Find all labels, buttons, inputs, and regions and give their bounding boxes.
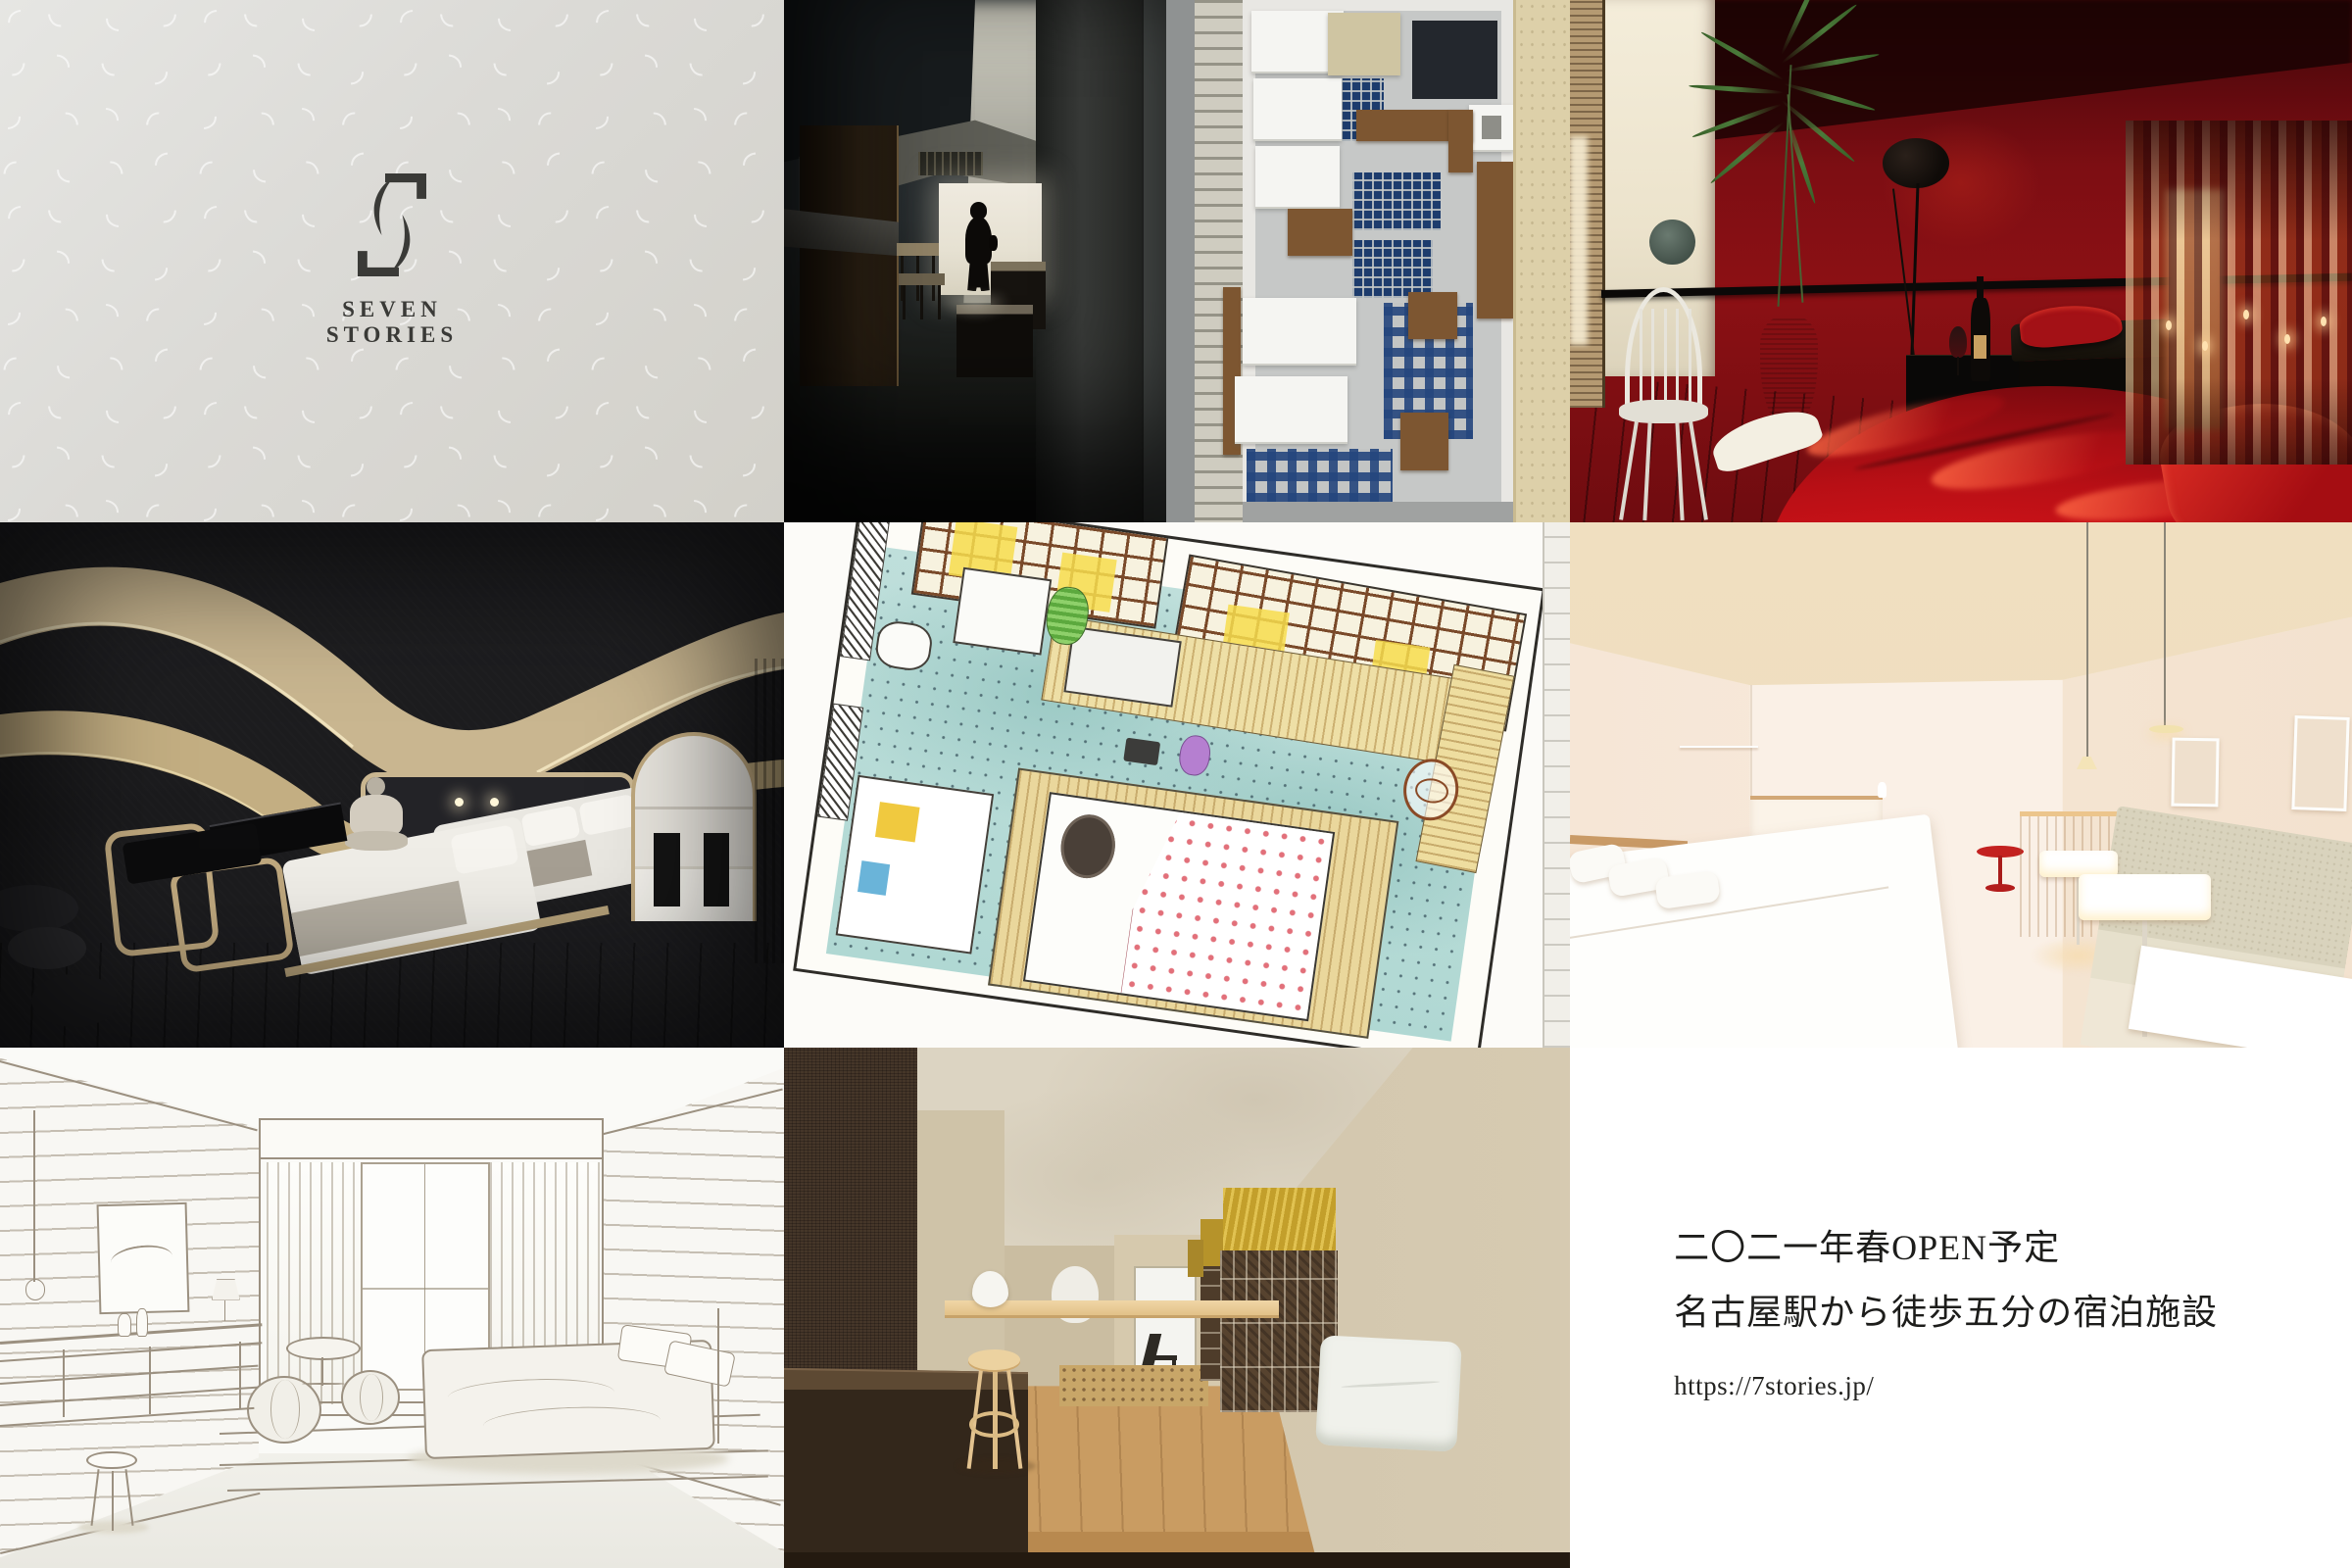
model-bottom-wall bbox=[1243, 502, 1513, 522]
wall-glow bbox=[1851, 94, 2070, 271]
tile-watercolor-floorplan bbox=[784, 522, 1570, 1048]
black-floor-lamp-head bbox=[1883, 138, 1949, 188]
side-table-top bbox=[286, 1337, 361, 1360]
tile-dark-ribbon-bedroom-render bbox=[0, 522, 784, 1048]
model-bed bbox=[1235, 376, 1347, 444]
counter-support bbox=[239, 1342, 241, 1409]
brand-wordmark-line1: SEVEN bbox=[245, 297, 539, 322]
white-windsor-chair bbox=[1613, 287, 1715, 522]
small-black-box bbox=[1123, 738, 1160, 766]
white-foam-block bbox=[1255, 146, 1341, 209]
pendant-wire bbox=[2164, 522, 2166, 727]
pendant-wire bbox=[2086, 522, 2088, 759]
stool-leg bbox=[112, 1471, 114, 1531]
blue-tile-patch bbox=[1352, 240, 1433, 298]
white-bed-corner bbox=[1316, 1336, 1463, 1452]
round-pouf bbox=[341, 1370, 400, 1425]
concrete-edge bbox=[1513, 0, 1570, 522]
seven-stories-s-logo-icon bbox=[358, 173, 426, 276]
sheer-curtain bbox=[2126, 121, 2352, 465]
counter-vase bbox=[136, 1308, 148, 1337]
tile-bedroom-line-sketch bbox=[0, 1048, 784, 1568]
tile-red-bedroom-render bbox=[1570, 0, 2352, 522]
model-bed bbox=[1243, 298, 1355, 366]
collage-stage: ◜◞◝◟◜◞◝◟◜◞◝◟◜◞◝◟◝◟◜◞◝◟◜◞◝◟◜◞◝◟◜◞◜◞◝◟◜◞◝◟… bbox=[0, 0, 2352, 1568]
window-valance bbox=[259, 1118, 604, 1159]
wall-art-frame bbox=[2291, 715, 2349, 811]
tile-brand-logo: ◜◞◝◟◜◞◝◟◜◞◝◟◜◞◝◟◝◟◜◞◝◟◜◞◝◟◜◞◝◟◜◞◜◞◝◟◜◞◝◟… bbox=[0, 0, 784, 522]
tile-architectural-model-photo bbox=[1166, 0, 1570, 522]
wall-art-frame bbox=[2172, 737, 2220, 806]
pendant-cord bbox=[33, 1110, 35, 1282]
wood-block bbox=[1288, 209, 1352, 256]
round-mirror bbox=[1649, 220, 1694, 265]
model-left-strip bbox=[1166, 0, 1195, 522]
tile-pink-room-render bbox=[1570, 522, 2352, 1048]
wood-block bbox=[1400, 413, 1448, 470]
gold-leaf-top bbox=[1223, 1188, 1336, 1250]
wood-block bbox=[1408, 292, 1456, 339]
bed-plan bbox=[1023, 792, 1335, 1021]
vignette bbox=[0, 522, 784, 1048]
white-vase bbox=[1878, 782, 1887, 798]
wood-bench-model bbox=[1477, 162, 1513, 318]
potted-palm-plant bbox=[1703, 11, 1876, 428]
wall-sliver bbox=[917, 1110, 1004, 1381]
wine-bottle bbox=[1971, 298, 1989, 381]
wood-bench-model bbox=[1448, 110, 1473, 172]
wood-bar-stool bbox=[964, 1349, 1023, 1469]
tile-announcement-text: 二〇二一年春OPEN予定 名古屋駅から徒歩五分の宿泊施設 https://7st… bbox=[1570, 1048, 2352, 1568]
blue-tile-grid bbox=[1247, 449, 1392, 501]
pendant-loop bbox=[25, 1279, 46, 1299]
gold-leaf-step bbox=[1188, 1240, 1203, 1276]
tile-entrance-silhouette-photo bbox=[784, 0, 1166, 522]
announcement-url: https://7stories.jp/ bbox=[1674, 1373, 2218, 1399]
counter-vase bbox=[118, 1313, 131, 1337]
round-pouf bbox=[247, 1376, 321, 1444]
photo-vignette bbox=[784, 0, 1166, 522]
dotted-rug bbox=[1059, 1365, 1208, 1406]
floorplan-drawing bbox=[793, 522, 1545, 1048]
tile-beige-collage-render bbox=[784, 1048, 1570, 1568]
window-light-slit bbox=[1570, 136, 1588, 345]
clothes-rail bbox=[1680, 746, 1758, 748]
announcement-line1: 二〇二一年春OPEN予定 bbox=[1674, 1230, 2218, 1265]
dark-base-band bbox=[784, 1552, 1570, 1568]
table-lamp-stem bbox=[224, 1300, 226, 1321]
headboard-line bbox=[717, 1308, 719, 1444]
beige-block bbox=[1328, 13, 1400, 75]
framed-art-sketch bbox=[97, 1202, 190, 1314]
white-box-with-hole bbox=[1469, 105, 1513, 152]
red-pedestal-table bbox=[1977, 846, 2024, 893]
wine-glass bbox=[1949, 326, 1967, 358]
curtain-left bbox=[267, 1162, 361, 1404]
white-foam-block bbox=[1253, 78, 1343, 141]
announcement-block: 二〇二一年春OPEN予定 名古屋駅から徒歩五分の宿泊施設 https://7st… bbox=[1674, 1230, 2218, 1399]
announcement-line2: 名古屋駅から徒歩五分の宿泊施設 bbox=[1674, 1295, 2218, 1330]
black-block bbox=[1412, 21, 1497, 99]
counter-support bbox=[149, 1347, 151, 1414]
stool-seat bbox=[86, 1451, 137, 1470]
bathroom-sink bbox=[953, 567, 1052, 656]
brand-wordmark-line2: STORIES bbox=[245, 322, 539, 348]
wardrobe bbox=[836, 774, 995, 954]
polka-dot-blanket bbox=[1121, 808, 1333, 1019]
counter-support bbox=[63, 1349, 65, 1417]
blue-tile-patch bbox=[1352, 172, 1442, 230]
side-table-stem bbox=[321, 1357, 323, 1386]
round-cushion bbox=[1057, 811, 1120, 882]
photo-edge-band bbox=[1543, 522, 1570, 1048]
